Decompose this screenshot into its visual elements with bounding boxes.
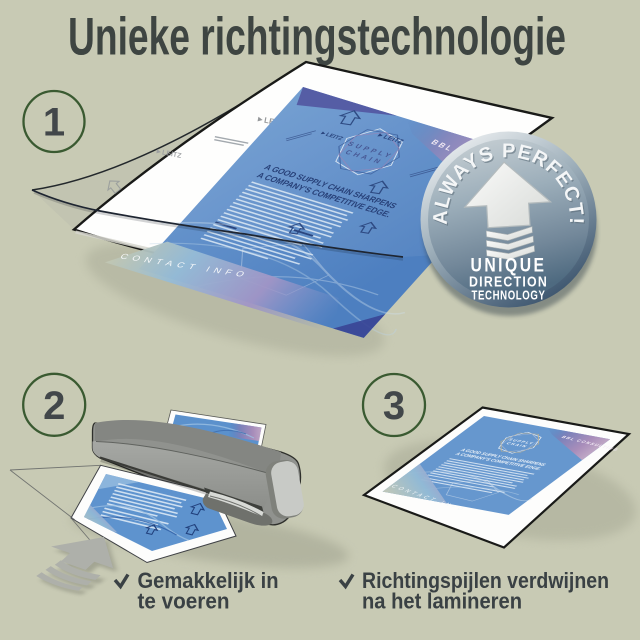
svg-text:na het lamineren: na het lamineren <box>362 589 522 614</box>
svg-text:te voeren: te voeren <box>138 589 230 614</box>
svg-text:1: 1 <box>43 101 65 145</box>
svg-text:Unieke richtingstechnologie: Unieke richtingstechnologie <box>68 8 566 67</box>
svg-text:2: 2 <box>43 384 65 428</box>
svg-text:3: 3 <box>383 384 405 428</box>
svg-text:TECHNOLOGY: TECHNOLOGY <box>472 289 546 303</box>
